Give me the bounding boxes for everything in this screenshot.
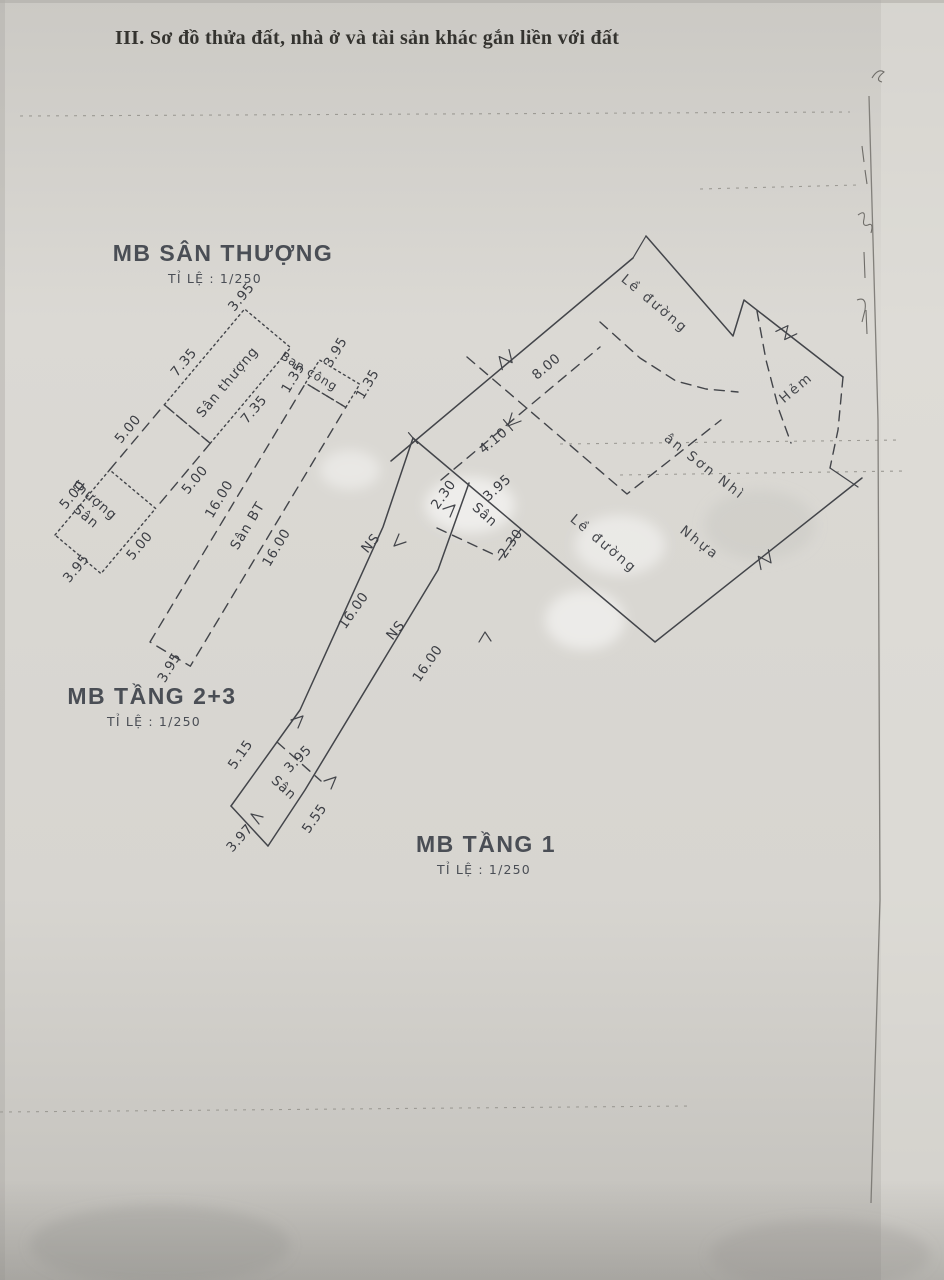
paper-background bbox=[0, 0, 944, 1280]
floor23-scale: TỈ LỆ : 1/250 bbox=[106, 713, 201, 729]
scanned-document-page: III. Sơ đồ thửa đất, nhà ở và tài sản kh… bbox=[0, 0, 944, 1280]
page-title: III. Sơ đồ thửa đất, nhà ở và tài sản kh… bbox=[115, 27, 619, 49]
plan-drawing: III. Sơ đồ thửa đất, nhà ở và tài sản kh… bbox=[0, 0, 944, 1280]
floor23-title: MB TẦNG 2+3 bbox=[67, 682, 236, 709]
roof-title: MB SÂN THƯỢNG bbox=[113, 239, 333, 266]
floor1-title: MB TẦNG 1 bbox=[416, 830, 556, 857]
floor1-scale: TỈ LỆ : 1/250 bbox=[436, 861, 531, 877]
